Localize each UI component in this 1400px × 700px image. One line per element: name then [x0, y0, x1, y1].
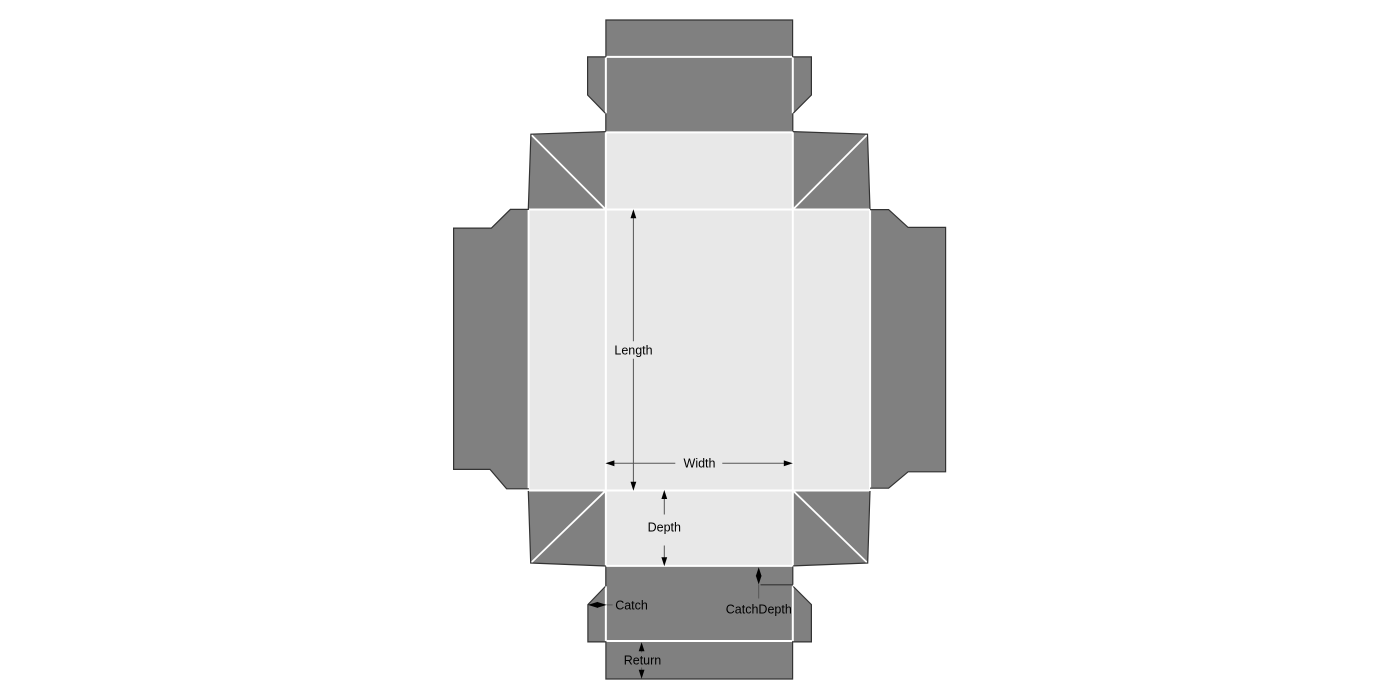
svg-text:Return: Return [624, 653, 662, 667]
svg-text:Length: Length [614, 343, 652, 357]
svg-text:Catch: Catch [615, 599, 648, 613]
svg-text:Depth: Depth [648, 520, 681, 534]
svg-text:Width: Width [684, 456, 716, 470]
svg-text:CatchDepth: CatchDepth [726, 602, 792, 616]
